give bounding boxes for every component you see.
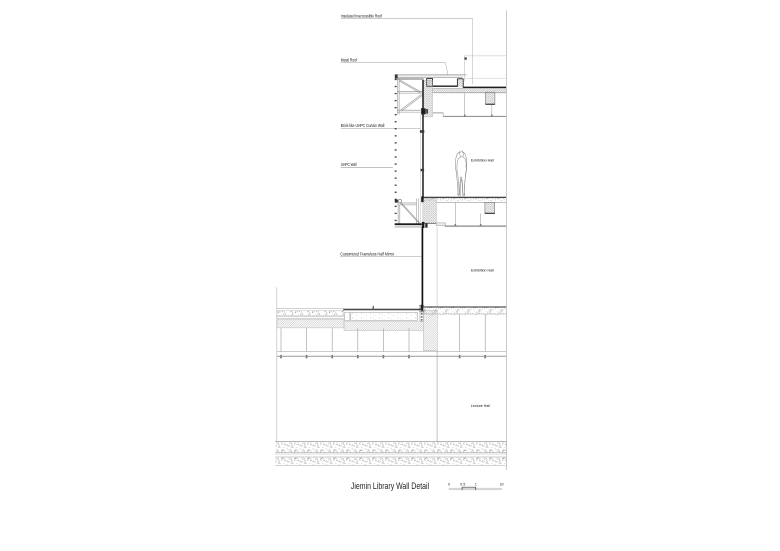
svg-text:Insulated Inaccessible Roof: Insulated Inaccessible Roof	[341, 13, 383, 18]
svg-text:Jiemin Library Wall Detail: Jiemin Library Wall Detail	[351, 481, 429, 491]
svg-text:0: 0	[448, 482, 450, 486]
svg-text:2m: 2m	[500, 482, 504, 486]
svg-text:Metal Roof: Metal Roof	[341, 57, 358, 62]
svg-text:0.5: 0.5	[460, 482, 465, 486]
svg-text:Customized Frameless Half Mirr: Customized Frameless Half Mirror	[340, 252, 394, 257]
svg-text:Exhibition Hall: Exhibition Hall	[471, 158, 494, 163]
svg-text:UHPC Wall: UHPC Wall	[341, 162, 357, 167]
svg-text:Exhibition Hall: Exhibition Hall	[471, 268, 494, 273]
svg-text:Lecture Hall: Lecture Hall	[471, 403, 490, 408]
svg-text:Brick-like UHPC Curtain Wall: Brick-like UHPC Curtain Wall	[341, 123, 385, 128]
svg-text:1: 1	[475, 482, 477, 486]
